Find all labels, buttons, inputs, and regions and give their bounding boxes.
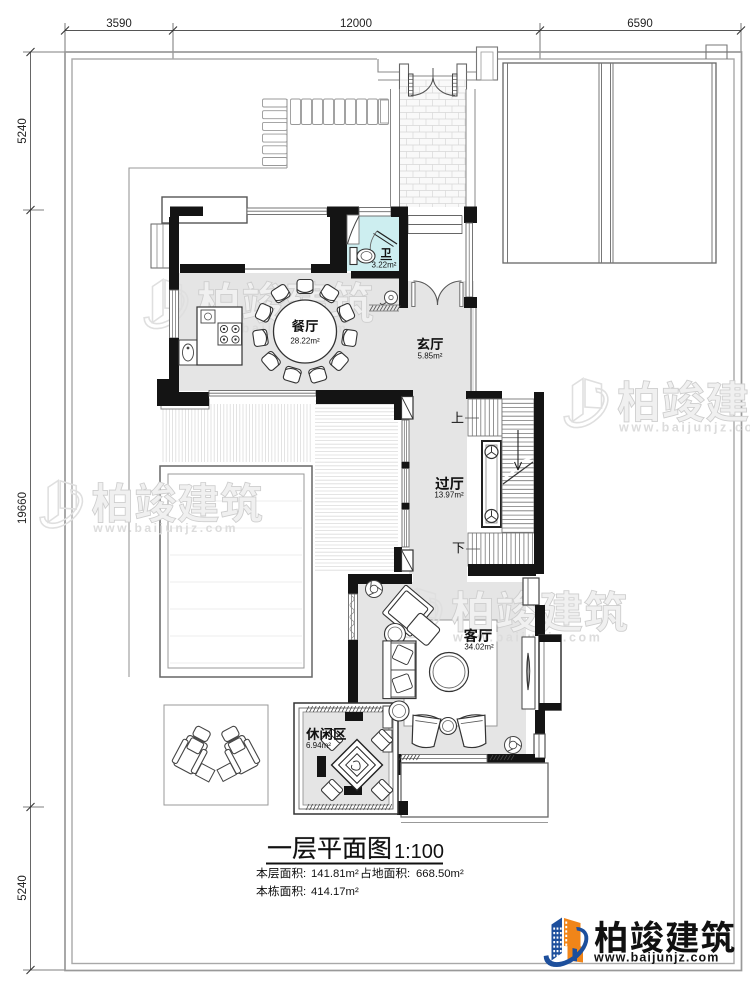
svg-text:19660: 19660 xyxy=(17,492,29,524)
svg-text::: : xyxy=(407,868,410,880)
svg-text:141.81m²: 141.81m² xyxy=(311,868,359,880)
svg-text:5240: 5240 xyxy=(17,875,29,901)
svg-text:5240: 5240 xyxy=(17,118,29,144)
svg-text:12000: 12000 xyxy=(340,18,372,30)
svg-text:28.22m²: 28.22m² xyxy=(290,337,320,346)
svg-text:6.94m²: 6.94m² xyxy=(306,741,331,750)
svg-text:13.97m²: 13.97m² xyxy=(434,491,464,500)
svg-text:6590: 6590 xyxy=(627,18,653,30)
svg-text:414.17m²: 414.17m² xyxy=(311,886,359,898)
svg-text::: : xyxy=(303,886,306,898)
svg-text:3.22m²: 3.22m² xyxy=(372,261,397,270)
svg-text:5.85m²: 5.85m² xyxy=(418,352,443,361)
svg-text:www.baijunjz.com: www.baijunjz.com xyxy=(593,951,719,965)
svg-text:3590: 3590 xyxy=(106,18,132,30)
svg-text:1:100: 1:100 xyxy=(394,841,444,863)
svg-text::: : xyxy=(303,868,306,880)
svg-text:668.50m²: 668.50m² xyxy=(416,868,464,880)
svg-text:34.02m²: 34.02m² xyxy=(464,643,494,652)
